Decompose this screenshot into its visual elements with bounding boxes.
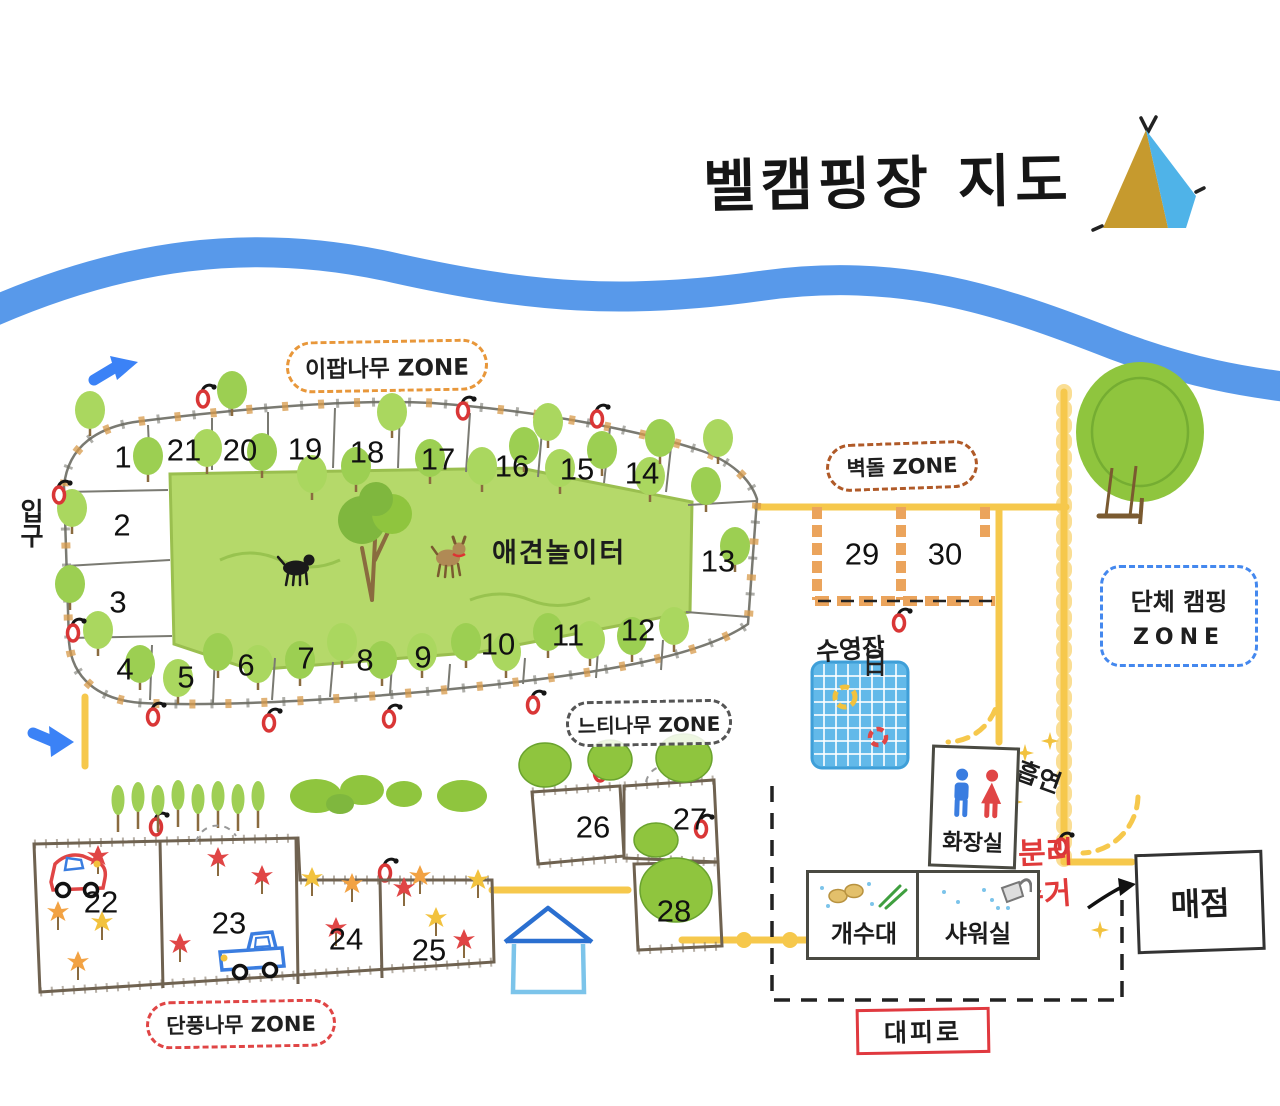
map-drawing: [0, 0, 1280, 1106]
shower-head-icon: [1002, 880, 1031, 902]
site-22: 22: [84, 887, 118, 918]
store-label: 매점: [1170, 878, 1230, 926]
site-13: 13: [701, 546, 735, 577]
sink-box: 개수대: [806, 870, 922, 960]
site-14: 14: [625, 458, 659, 489]
dog-playground-label: 애견놀이터: [492, 531, 626, 570]
site-6: 6: [237, 650, 254, 681]
dish-icon: [829, 885, 863, 903]
site-20: 20: [223, 435, 257, 466]
shower-box: 샤워실: [916, 870, 1040, 960]
group-camping-line2: ZONE: [1133, 625, 1225, 650]
group-camping-line1: 단체 캠핑: [1131, 582, 1228, 617]
entrance-arrow-icon: [33, 726, 74, 757]
site-11: 11: [552, 620, 584, 651]
restroom-figures: [939, 764, 1011, 822]
river: [0, 252, 1280, 388]
restroom-man-icon: [954, 768, 970, 814]
site-7: 7: [297, 643, 314, 674]
site-29: 29: [845, 539, 879, 570]
store-box: 매점: [1134, 850, 1265, 954]
restroom-box: 화장실: [928, 745, 1020, 870]
zone-label-maple: 단풍나무 ZONE: [146, 998, 337, 1049]
water-drops: [942, 888, 1010, 910]
site-3: 3: [109, 587, 126, 618]
page-title: 벨캠핑장 지도: [702, 135, 1073, 223]
entrance-label: 입구: [12, 498, 48, 548]
shower-drawing: [924, 878, 1032, 912]
entrance-arrow-icon: [94, 356, 138, 380]
site-17: 17: [421, 444, 455, 475]
sink-drawing: [814, 878, 914, 912]
arrow-to-store-icon: [1088, 878, 1136, 908]
bushes: [290, 775, 487, 814]
swing-tree-icon: [1076, 362, 1204, 524]
site-23: 23: [212, 908, 246, 939]
zone-label-brick: 벽돌 ZONE: [825, 439, 979, 492]
site-26: 26: [576, 812, 610, 843]
restroom-label: 화장실: [942, 824, 1004, 858]
site-28: 28: [657, 896, 691, 927]
site-4: 4: [116, 654, 133, 685]
site-16: 16: [495, 451, 529, 482]
site-21: 21: [167, 435, 201, 466]
site-25: 25: [412, 935, 446, 966]
site-8: 8: [356, 645, 373, 676]
tent-icon: [1093, 117, 1204, 230]
site-27: 27: [673, 804, 707, 835]
shower-label: 샤워실: [945, 914, 1011, 949]
evacuation-route-text: 대피로: [884, 1012, 963, 1049]
zone-label-zelkova: 느티나무 ZONE: [566, 699, 733, 748]
zone-label-ipap: 이팝나무 ZONE: [286, 338, 489, 394]
pool-label: 수영장: [815, 628, 886, 669]
poplar-trees: [112, 780, 265, 832]
site-19: 19: [288, 434, 322, 465]
evacuation-route-label: 대피로: [856, 1007, 991, 1055]
site-24: 24: [329, 924, 363, 955]
campground-map: 벨캠핑장 지도 이팝나무 ZONE 벽돌 ZONE 느티나무 ZONE 단풍나무…: [0, 0, 1280, 1106]
zelkova-zone-sites: [532, 766, 722, 950]
site-12: 12: [621, 615, 655, 646]
recycling-label-line1: 분리: [1017, 827, 1074, 873]
brick-zone-sites: [815, 507, 995, 601]
sink-label: 개수대: [831, 914, 897, 949]
restroom-woman-icon: [981, 769, 1003, 816]
site-9: 9: [414, 642, 431, 673]
site-1: 1: [114, 442, 131, 473]
house-icon: [505, 908, 592, 992]
site-2: 2: [113, 510, 130, 541]
zone-label-group-camping: 단체 캠핑 ZONE: [1100, 565, 1258, 667]
site-5: 5: [177, 662, 194, 693]
site-18: 18: [350, 437, 384, 468]
site-30: 30: [928, 539, 962, 570]
green-onion-icon: [880, 886, 906, 908]
site-10: 10: [481, 629, 515, 660]
site-15: 15: [560, 454, 594, 485]
